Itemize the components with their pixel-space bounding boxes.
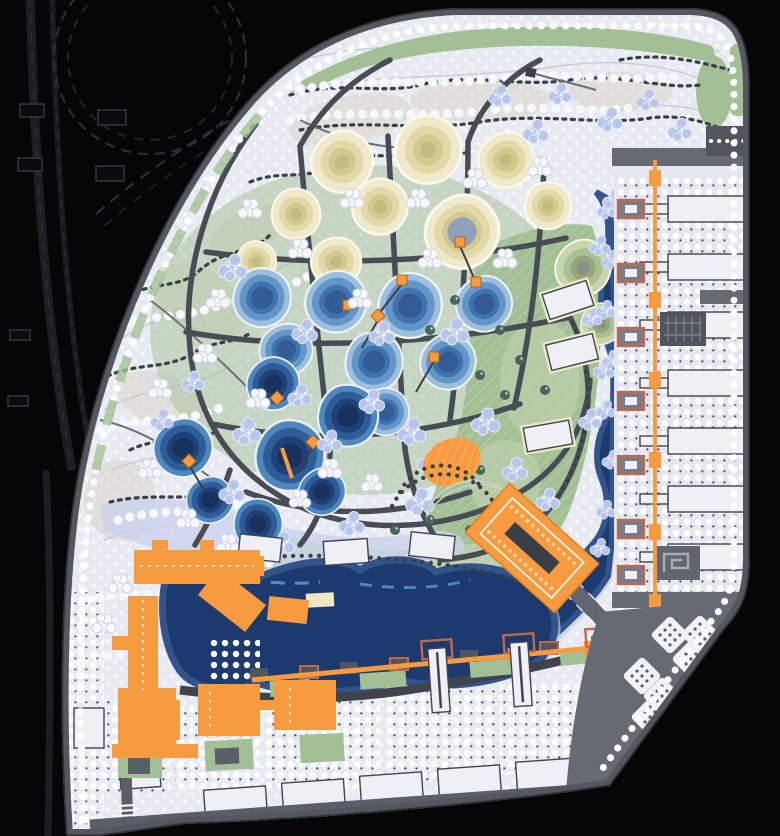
grid-plaza <box>660 312 706 346</box>
east-housing-strip <box>612 126 752 624</box>
masterplan-canvas <box>0 0 780 836</box>
scroll-plaza <box>656 546 700 580</box>
masterplan-svg <box>0 0 780 836</box>
